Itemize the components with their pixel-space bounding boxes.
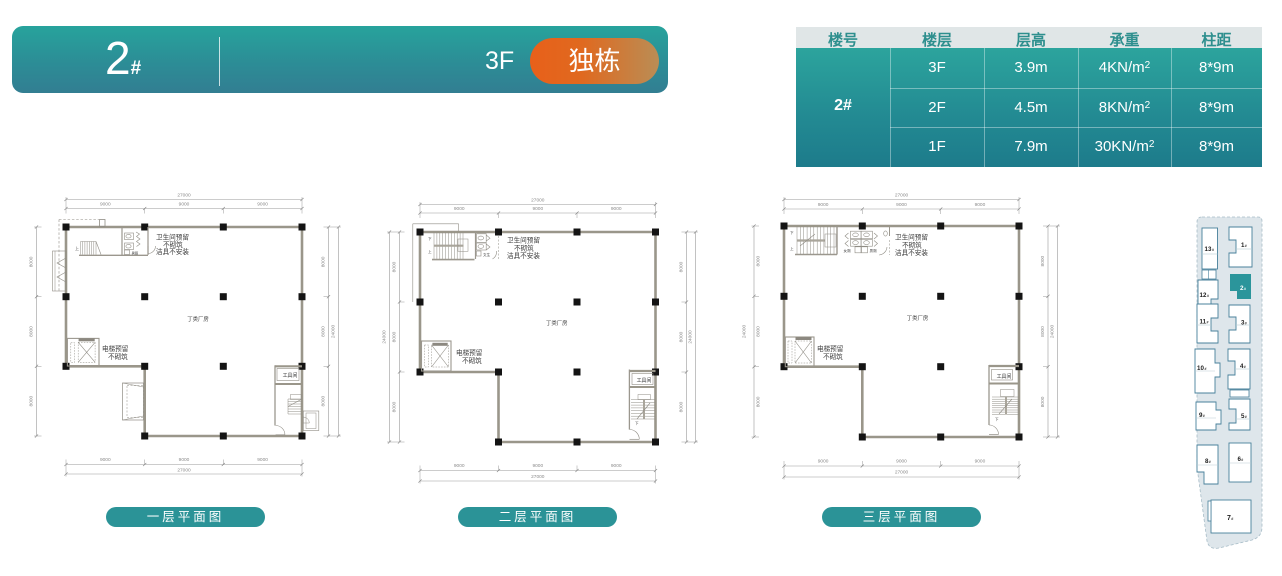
svg-text:8000: 8000 — [1040, 326, 1046, 337]
svg-text:#: # — [1207, 321, 1209, 325]
svg-text:#: # — [1205, 367, 1207, 371]
svg-text:#: # — [1212, 248, 1214, 252]
svg-text:不砌筑: 不砌筑 — [163, 240, 183, 249]
svg-text:下: 下 — [995, 418, 999, 422]
svg-text:工具间: 工具间 — [283, 372, 298, 379]
svg-text:8000: 8000 — [756, 326, 762, 337]
svg-text:男厕: 男厕 — [870, 248, 878, 253]
svg-text:9000: 9000 — [818, 202, 829, 208]
svg-text:#: # — [1245, 322, 1247, 326]
svg-text:27000: 27000 — [895, 193, 909, 199]
svg-text:9000: 9000 — [975, 459, 986, 465]
svg-text:24000: 24000 — [688, 330, 694, 344]
svg-text:9000: 9000 — [257, 202, 268, 208]
svg-text:24000: 24000 — [1050, 325, 1056, 339]
svg-text:文生: 文生 — [483, 252, 491, 257]
svg-text:9000: 9000 — [611, 206, 622, 212]
svg-text:#: # — [1241, 458, 1243, 462]
svg-text:24000: 24000 — [331, 325, 337, 339]
svg-text:上: 上 — [75, 245, 79, 251]
svg-text:24000: 24000 — [742, 325, 748, 339]
svg-text:9000: 9000 — [179, 457, 190, 463]
svg-text:8000: 8000 — [1040, 396, 1046, 407]
svg-text:8000: 8000 — [756, 396, 762, 407]
svg-text:8000: 8000 — [392, 331, 398, 342]
svg-text:#: # — [1209, 460, 1211, 464]
svg-text:8000: 8000 — [679, 331, 685, 342]
svg-text:不砌筑: 不砌筑 — [514, 243, 534, 252]
svg-text:卫生间预留: 卫生间预留 — [156, 233, 189, 242]
svg-text:卫生间预留: 卫生间预留 — [895, 233, 928, 242]
svg-text:9000: 9000 — [454, 463, 465, 469]
svg-text:8000: 8000 — [29, 256, 35, 267]
svg-text:9000: 9000 — [100, 202, 111, 208]
svg-text:27000: 27000 — [531, 474, 545, 480]
svg-text:女厕: 女厕 — [844, 248, 852, 253]
svg-text:电梯预留: 电梯预留 — [456, 348, 483, 357]
svg-text:工具间: 工具间 — [637, 377, 652, 384]
svg-text:下: 下 — [635, 422, 639, 426]
svg-text:丁类厂房: 丁类厂房 — [546, 319, 568, 327]
svg-text:9000: 9000 — [975, 202, 986, 208]
svg-text:8000: 8000 — [679, 261, 685, 272]
svg-text:工具间: 工具间 — [997, 373, 1012, 380]
svg-text:#: # — [1244, 287, 1246, 291]
svg-text:8000: 8000 — [392, 401, 398, 412]
svg-text:#: # — [1245, 244, 1247, 248]
svg-text:#: # — [1203, 414, 1205, 418]
svg-text:不砌筑: 不砌筑 — [462, 356, 482, 365]
svg-text:电梯预留: 电梯预留 — [817, 344, 844, 353]
svg-text:不砌筑: 不砌筑 — [108, 352, 128, 361]
svg-text:8000: 8000 — [321, 256, 327, 267]
svg-text:洁具不安装: 洁具不安装 — [156, 247, 189, 256]
svg-text:丁类厂房: 丁类厂房 — [187, 315, 209, 323]
svg-text:9000: 9000 — [454, 206, 465, 212]
svg-text:24000: 24000 — [382, 330, 388, 344]
svg-text:9000: 9000 — [896, 459, 907, 465]
svg-text:9000: 9000 — [818, 459, 829, 465]
svg-text:8000: 8000 — [756, 255, 762, 266]
svg-text:27000: 27000 — [177, 468, 191, 474]
svg-text:9000: 9000 — [532, 463, 543, 469]
svg-text:12: 12 — [1200, 292, 1207, 299]
svg-text:#: # — [1207, 294, 1209, 298]
svg-text:27000: 27000 — [531, 198, 545, 204]
svg-text:8000: 8000 — [321, 395, 327, 406]
svg-text:9000: 9000 — [100, 457, 111, 463]
svg-text:上: 上 — [428, 249, 432, 254]
svg-text:8000: 8000 — [321, 326, 327, 337]
svg-text:9000: 9000 — [532, 206, 543, 212]
svg-text:27000: 27000 — [177, 193, 191, 199]
svg-text:不砌筑: 不砌筑 — [823, 352, 843, 361]
svg-text:男厕: 男厕 — [132, 251, 139, 256]
svg-text:洁具不安装: 洁具不安装 — [507, 251, 540, 260]
svg-text:下: 下 — [428, 237, 432, 241]
svg-text:9000: 9000 — [179, 202, 190, 208]
svg-text:不砌筑: 不砌筑 — [902, 240, 922, 249]
svg-text:10: 10 — [1197, 365, 1204, 372]
svg-text:上: 上 — [790, 246, 794, 251]
svg-text:9000: 9000 — [611, 463, 622, 469]
svg-text:#: # — [1245, 415, 1247, 419]
svg-text:13: 13 — [1205, 246, 1212, 253]
svg-text:洁具不安装: 洁具不安装 — [895, 248, 928, 257]
svg-text:9000: 9000 — [257, 457, 268, 463]
svg-text:电梯预留: 电梯预留 — [102, 344, 129, 353]
svg-text:9000: 9000 — [896, 202, 907, 208]
svg-text:卫生间预留: 卫生间预留 — [507, 236, 540, 245]
svg-text:丁类厂房: 丁类厂房 — [907, 314, 929, 322]
svg-text:#: # — [1244, 365, 1246, 369]
svg-text:8000: 8000 — [1040, 255, 1046, 266]
svg-text:8000: 8000 — [392, 261, 398, 272]
svg-text:8000: 8000 — [679, 401, 685, 412]
svg-text:8000: 8000 — [29, 326, 35, 337]
svg-text:27000: 27000 — [895, 470, 909, 476]
svg-text:8000: 8000 — [29, 395, 35, 406]
svg-text:下: 下 — [790, 231, 794, 235]
